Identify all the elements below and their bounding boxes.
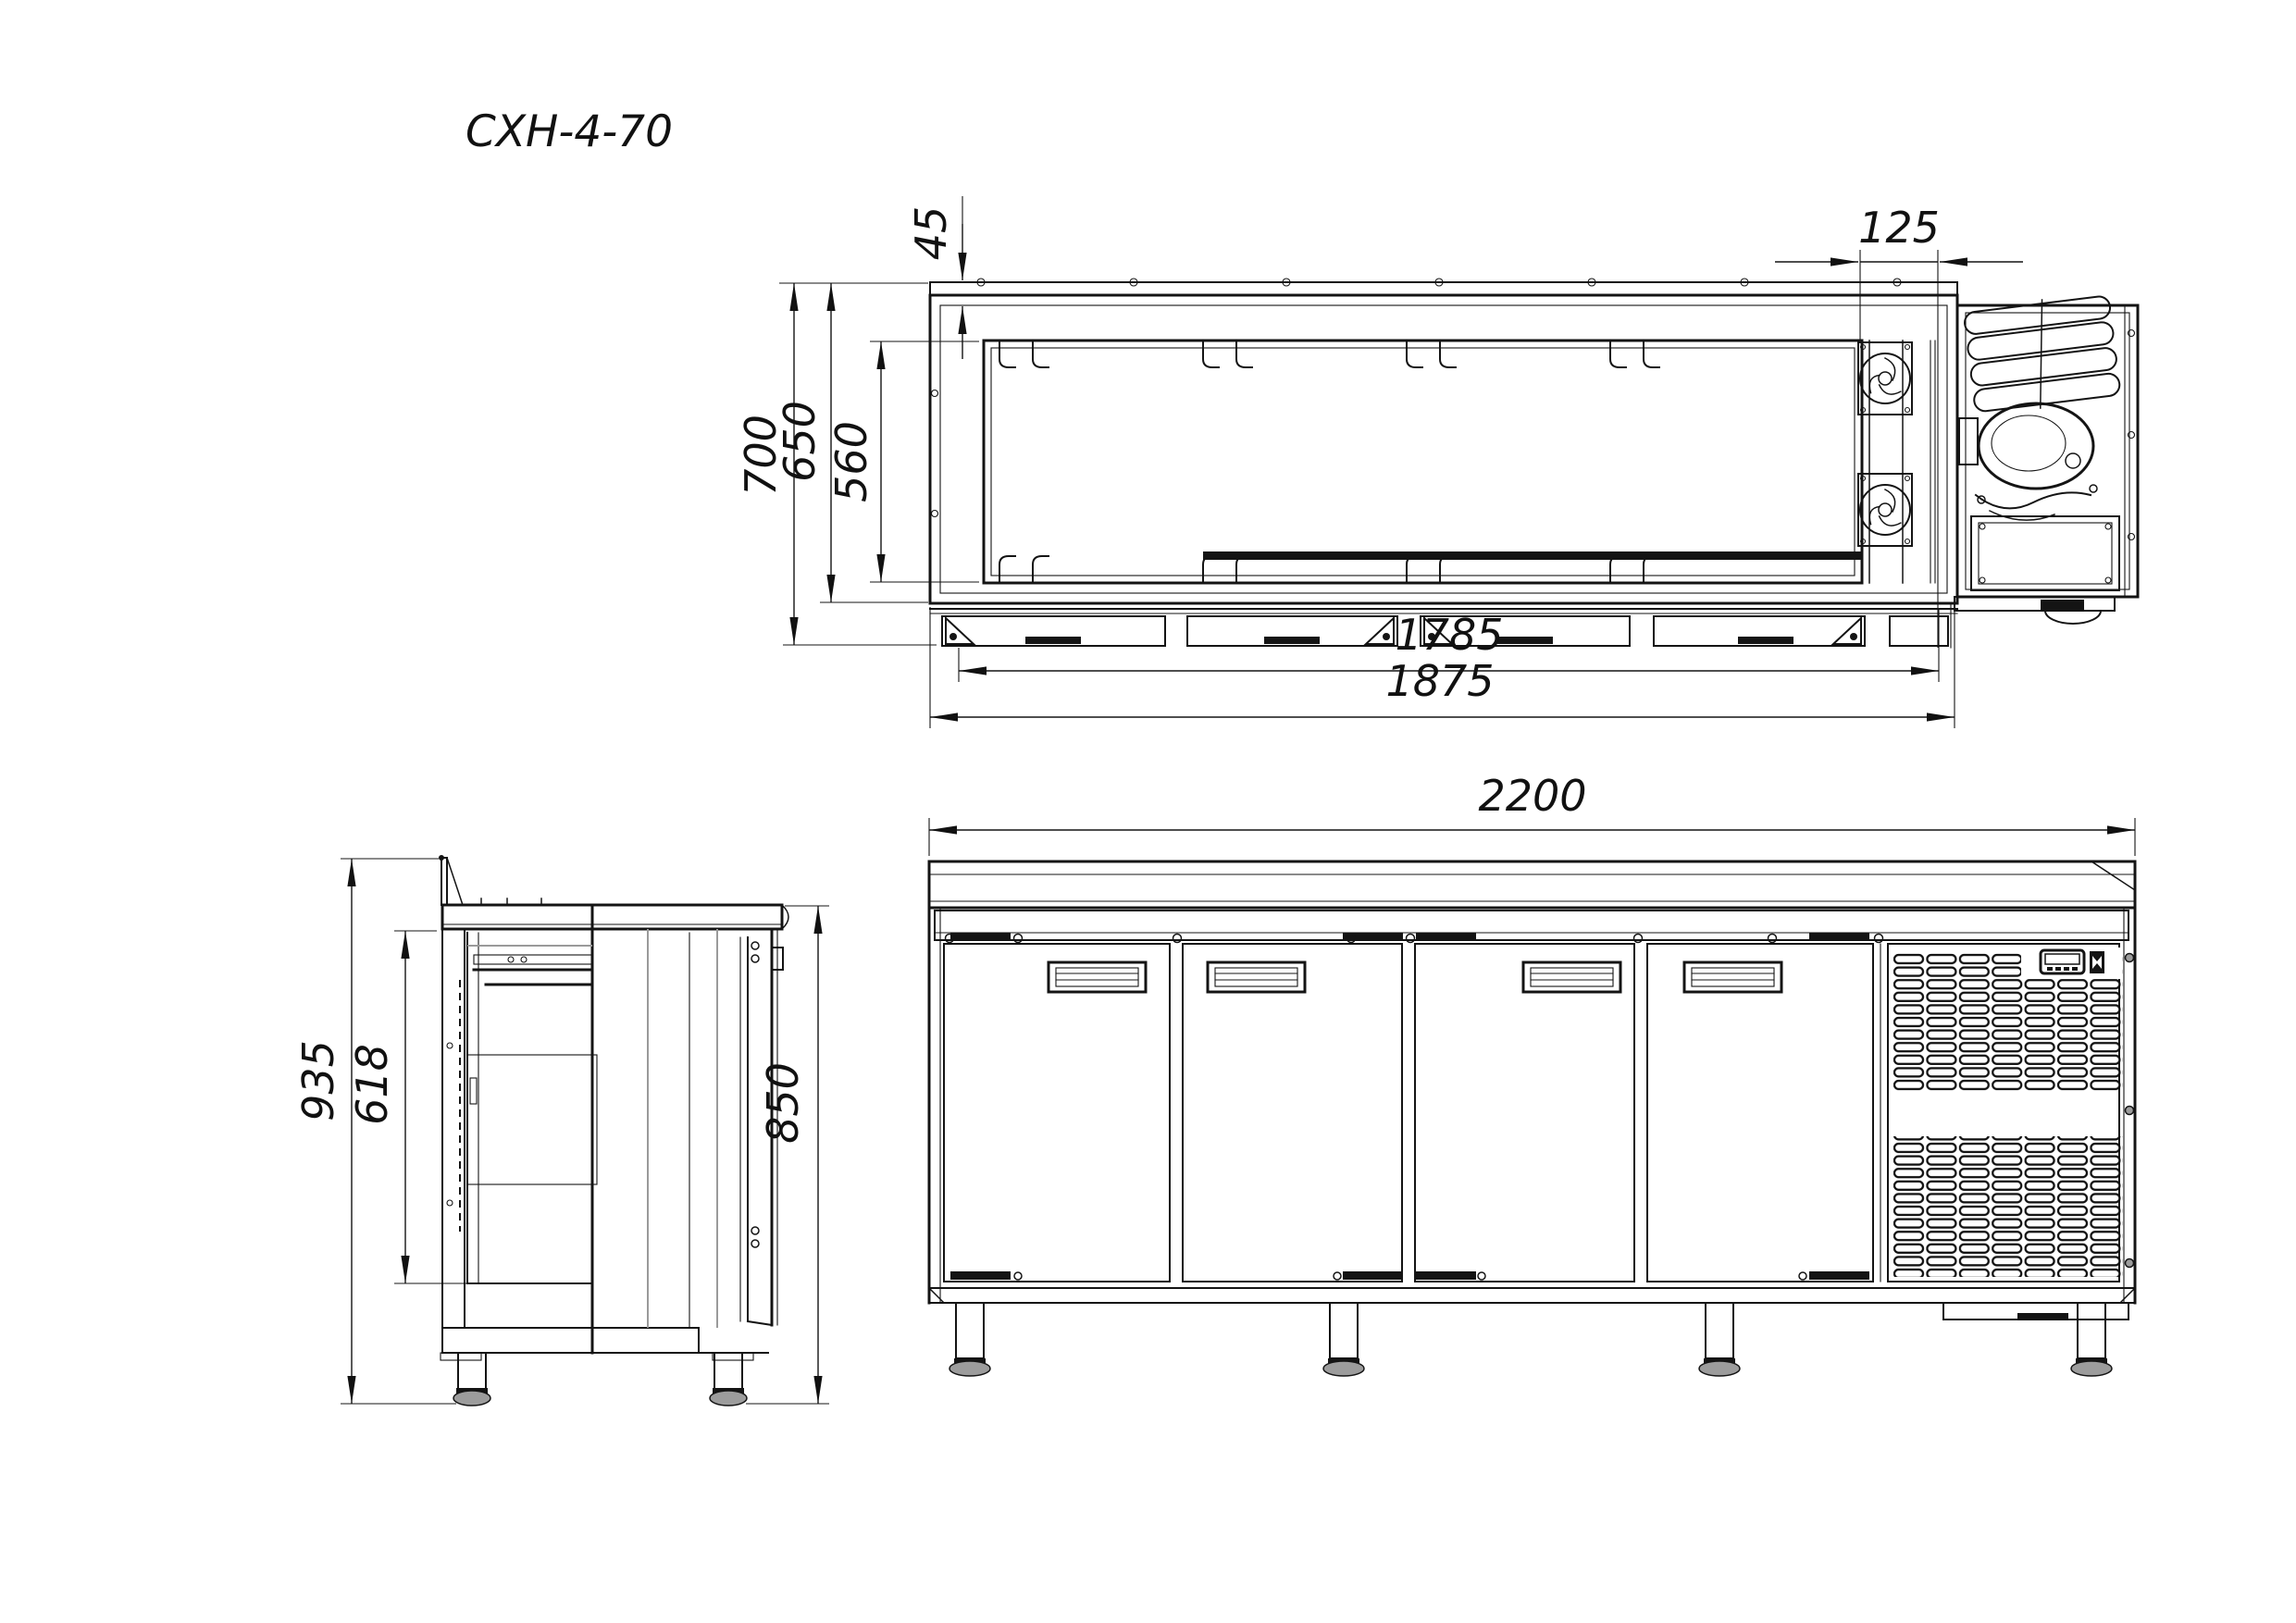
dim-label-850: 850 [758, 1062, 808, 1144]
drawing-title: СХН-4-70 [465, 106, 673, 157]
side-panel [648, 929, 717, 1328]
insulation-back-wall [442, 929, 465, 1328]
plan-worktop-band [930, 282, 1957, 295]
evaporator-fan-2 [1858, 474, 1912, 546]
drawing-sheet: СХН-4-70 [0, 0, 2296, 1623]
dim-label-1785: 1785 [1395, 610, 1503, 660]
dim-label-560: 560 [826, 421, 876, 502]
dim-label-618: 618 [347, 1044, 397, 1125]
insulation-bottom [442, 1328, 699, 1353]
leg [1699, 1303, 1740, 1376]
dim-label-1875: 1875 [1385, 656, 1494, 706]
vent-grille [1880, 944, 2134, 1282]
dim-side-overall-height: 935 [293, 855, 456, 1404]
leg [2071, 1303, 2112, 1376]
side-interior [447, 933, 597, 1283]
louver-block-lower [1893, 1136, 2123, 1277]
dim-label-2200: 2200 [1478, 771, 1586, 821]
condenser-coil [1963, 291, 2121, 415]
perforated-panel [467, 1055, 597, 1184]
evaporator-fan-1 [1858, 342, 1912, 415]
dim-side-interior-height: 618 [347, 931, 481, 1283]
side-view: 935 618 850 [293, 855, 829, 1406]
door-1[interactable] [944, 944, 1170, 1282]
front-bottom-hinges [950, 1271, 1869, 1280]
terminal-box [1971, 516, 2119, 590]
door-handle-3[interactable] [1523, 962, 1620, 992]
door-4[interactable] [1647, 944, 1873, 1282]
door-handle-1[interactable] [1049, 962, 1146, 992]
technical-drawing: СХН-4-70 [0, 0, 2296, 1623]
dim-label-125: 125 [1858, 203, 1940, 253]
dim-front-worktop-height: 850 [746, 906, 829, 1404]
dim-plan-interior-depth: 560 [826, 341, 979, 582]
machine-pipes [1976, 485, 2097, 520]
plan-shelf-clips-bottom [999, 556, 1659, 583]
plan-shelf-clips-top [999, 341, 1659, 367]
plan-fan-partition [1858, 341, 1935, 583]
brand-icon [2090, 951, 2104, 973]
leg [949, 1303, 990, 1376]
door-handle-2[interactable] [1208, 962, 1305, 992]
plan-air-duct [1203, 551, 1862, 560]
door-3[interactable] [1415, 944, 1634, 1282]
dim-front-overall-width: 2200 [929, 771, 2135, 856]
leg [1323, 1303, 1364, 1376]
door-handle-4[interactable] [1684, 962, 1781, 992]
door-2[interactable] [1183, 944, 1402, 1282]
dim-plan-top-wall: 45 [906, 196, 962, 359]
side-legs [441, 1353, 753, 1406]
plan-view: 45 125 700 650 560 [736, 196, 2138, 728]
compressor [1959, 403, 2093, 489]
dim-label-650: 650 [775, 401, 825, 482]
dim-label-935: 935 [293, 1040, 343, 1121]
front-base [929, 1288, 2135, 1319]
dim-label-45: 45 [906, 206, 956, 261]
plan-inner-liner [984, 341, 1862, 583]
front-top-rail [935, 911, 2128, 940]
machine-tray [1955, 597, 2115, 611]
side-worktop [441, 858, 788, 929]
front-legs [949, 1303, 2112, 1376]
machine-foot [2045, 611, 2101, 624]
front-worktop [929, 861, 2135, 908]
plan-machine-compartment [1951, 291, 2138, 648]
front-view: 2200 [929, 771, 2135, 1376]
